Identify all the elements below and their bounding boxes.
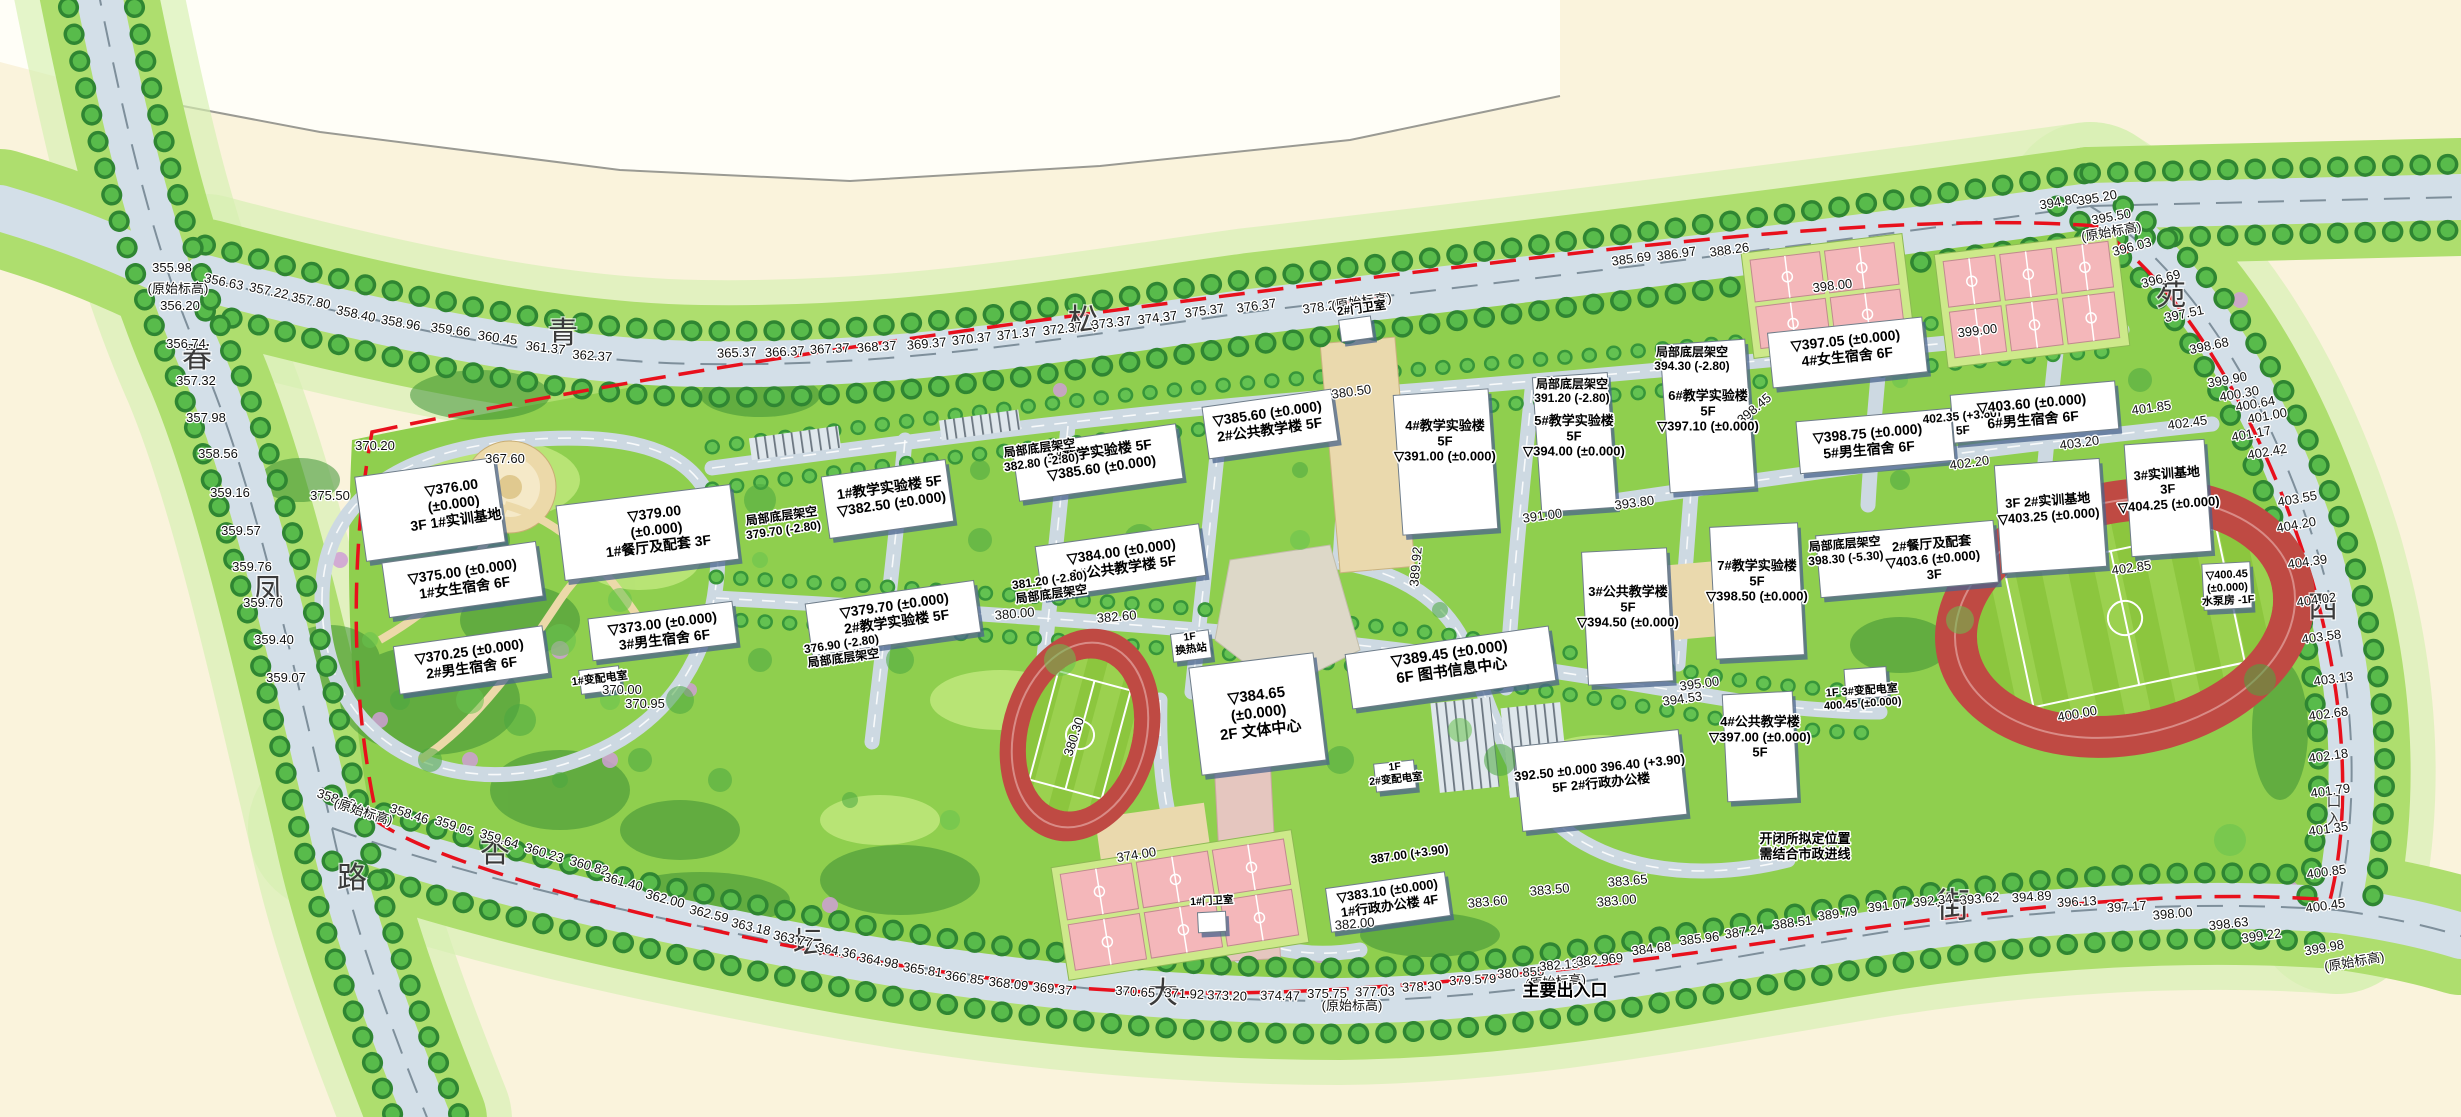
tree	[1890, 470, 1910, 490]
tree	[1290, 530, 1310, 550]
elevation-marker: 394.89	[2011, 888, 2052, 906]
elevation-marker: 370.95	[625, 696, 665, 711]
elevation-marker: 356.74	[166, 336, 206, 351]
elevation-marker: 374.47	[1260, 988, 1300, 1004]
elevation-marker: 355.98	[152, 260, 192, 275]
elevation-marker: 357.98	[186, 410, 226, 425]
elevation-marker: 378.30	[1402, 978, 1442, 994]
elevation-marker: (原始标高)	[148, 281, 209, 296]
elevation-marker: 379.579	[1449, 971, 1497, 988]
elevation-marker: 396.13	[2057, 893, 2097, 910]
street-name-char: 路	[337, 861, 367, 896]
tree	[2244, 664, 2276, 696]
elevation-marker: (原始标高)	[1322, 998, 1383, 1013]
elevation-marker: 367.37	[810, 340, 850, 357]
elevation-marker: 377.03	[1355, 984, 1395, 1000]
tree	[940, 810, 960, 830]
tree	[842, 792, 858, 808]
tree	[708, 768, 732, 792]
tree	[970, 460, 990, 480]
tree	[544, 624, 576, 656]
tree	[1946, 606, 1974, 634]
tree	[748, 648, 772, 672]
building	[1197, 911, 1229, 938]
tree	[552, 772, 568, 788]
elevation-marker: 359.07	[266, 670, 306, 685]
elevation-marker: 357.32	[176, 373, 216, 388]
elevation-marker: 362.37	[572, 347, 613, 365]
elevation-marker: 375.50	[310, 488, 350, 503]
tree	[886, 646, 914, 674]
elevation-marker: 371.92	[1164, 985, 1204, 1002]
tree	[418, 748, 442, 772]
elevation-marker: 359.40	[254, 632, 294, 647]
tree	[628, 748, 652, 772]
map-label: ▽400.45(±0.000)水泵房 -1F	[2200, 568, 2255, 609]
tree	[1432, 602, 1448, 618]
elevation-marker: 370.65	[1115, 983, 1156, 1001]
tree	[362, 632, 378, 648]
elevation-marker: 373.20	[1207, 987, 1247, 1003]
elevation-marker: 370.20	[355, 438, 395, 453]
map-label: 1#门卫室	[1190, 893, 1234, 908]
elevation-marker: 359.70	[243, 595, 283, 610]
elevation-marker: 370.00	[602, 682, 642, 697]
elevation-marker: 366.37	[765, 343, 805, 360]
map-label: 局部底层架空394.30 (-2.80)	[1654, 344, 1729, 373]
parking-lot	[1430, 697, 1499, 793]
elevation-marker: 356.20	[160, 298, 200, 313]
map-label: 局部底层架空391.20 (-2.80)	[1534, 376, 1609, 405]
elevation-marker: 358.56	[198, 446, 238, 461]
building	[1393, 389, 1501, 540]
elevation-marker: 368.37	[856, 338, 897, 356]
campus-master-plan-stage: 春凤路青松杏坛大街苑西口入 355.98(原始标高)356.20356.7435…	[0, 0, 2461, 1117]
tree	[2214, 824, 2246, 856]
elevation-marker: 359.16	[210, 485, 250, 500]
elevation-marker: 359.57	[221, 523, 261, 538]
campus-master-plan: 春凤路青松杏坛大街苑西口入 355.98(原始标高)356.20356.7435…	[0, 0, 2461, 1117]
elevation-marker: 365.37	[717, 344, 757, 360]
elevation-marker: 359.76	[232, 559, 272, 574]
tree	[1326, 746, 1354, 774]
tree	[504, 704, 536, 736]
tree	[1292, 462, 1308, 478]
map-label: 主要出入口	[1523, 980, 1608, 1000]
tree	[1484, 744, 1516, 776]
elevation-marker: 367.60	[485, 451, 525, 466]
tree	[1044, 644, 1076, 676]
basketball-court-group	[1934, 232, 2130, 367]
tree	[2128, 368, 2152, 392]
tree	[1448, 718, 1472, 742]
tree	[608, 588, 632, 612]
elevation-marker: 397.17	[2106, 898, 2147, 916]
map-label: 开闭所拟定位置需结合市政进线	[1759, 831, 1850, 861]
tree	[968, 528, 992, 552]
tree	[666, 686, 694, 714]
tree	[752, 552, 768, 568]
